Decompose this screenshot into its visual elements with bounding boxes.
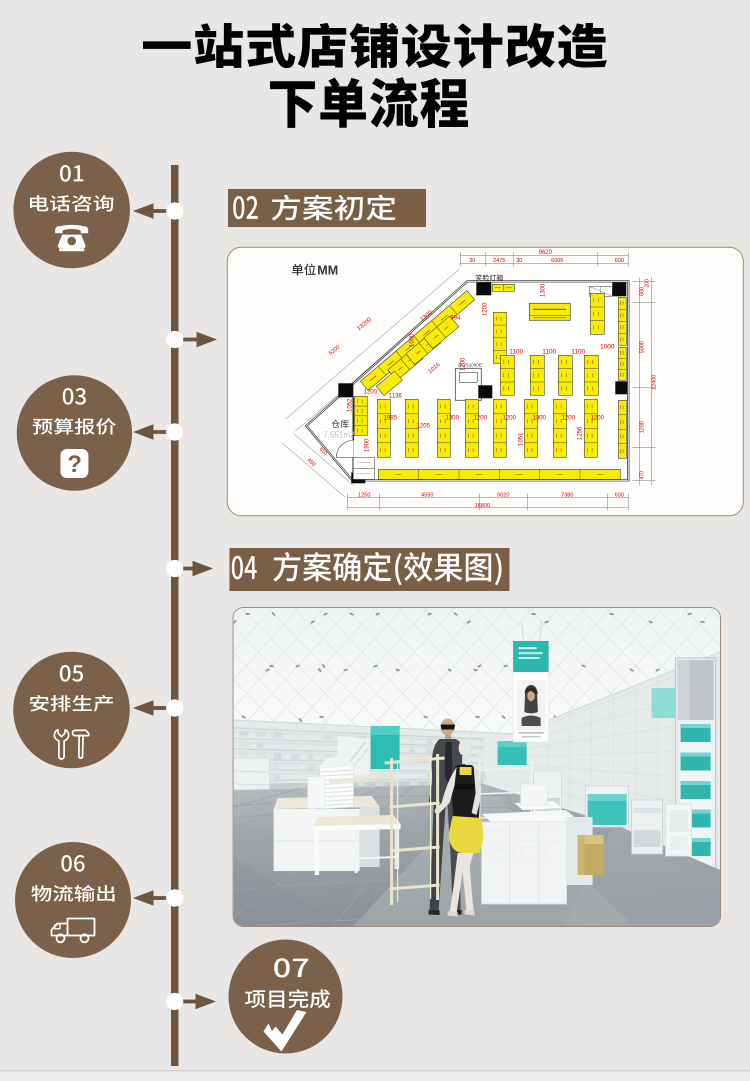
svg-text:1200: 1200 — [482, 302, 488, 316]
svg-text:600: 600 — [615, 258, 624, 264]
svg-text:7.551m2: 7.551m2 — [323, 430, 355, 439]
svg-text:1900: 1900 — [364, 438, 370, 452]
svg-text:1205: 1205 — [417, 423, 431, 429]
svg-text:9020: 9020 — [497, 492, 509, 498]
svg-text:6005: 6005 — [551, 258, 563, 264]
svg-text:5000: 5000 — [639, 341, 645, 353]
svg-text:1200: 1200 — [591, 415, 605, 421]
svg-text:1100: 1100 — [542, 348, 556, 355]
svg-text:?: ? — [67, 451, 82, 478]
svg-text:1200: 1200 — [639, 421, 645, 433]
svg-text:30: 30 — [516, 258, 522, 264]
svg-text:470: 470 — [639, 471, 645, 480]
svg-text:1136: 1136 — [389, 393, 403, 399]
svg-text:1100: 1100 — [571, 348, 585, 355]
svg-text:1200: 1200 — [474, 415, 488, 421]
svg-text:1051: 1051 — [518, 432, 524, 446]
svg-text:200: 200 — [644, 279, 650, 288]
svg-text:1300: 1300 — [533, 415, 547, 421]
svg-text:1052: 1052 — [347, 398, 353, 412]
svg-text:1000: 1000 — [600, 343, 615, 350]
svg-text:9620: 9620 — [539, 250, 553, 256]
svg-text:MM: MM — [317, 263, 338, 277]
svg-text:1200: 1200 — [364, 389, 378, 395]
svg-text:1200: 1200 — [562, 415, 576, 421]
svg-text:1200: 1200 — [503, 415, 517, 421]
svg-text:1200: 1200 — [460, 357, 466, 371]
svg-text:1300: 1300 — [446, 415, 460, 421]
svg-text:1100: 1100 — [509, 348, 523, 355]
svg-text:600: 600 — [615, 492, 624, 498]
svg-text:1256: 1256 — [577, 426, 583, 440]
svg-text:1300: 1300 — [540, 283, 546, 297]
svg-text:30: 30 — [469, 258, 475, 264]
svg-text:16800: 16800 — [475, 503, 490, 509]
svg-text:12400: 12400 — [651, 375, 657, 390]
svg-text:1985: 1985 — [384, 415, 398, 421]
svg-text:994: 994 — [450, 315, 461, 321]
svg-text:4590: 4590 — [421, 492, 433, 498]
svg-text:1250: 1250 — [358, 492, 370, 498]
svg-text:2475: 2475 — [493, 258, 505, 264]
svg-text:1000: 1000 — [409, 333, 415, 347]
svg-text:7380: 7380 — [561, 492, 573, 498]
